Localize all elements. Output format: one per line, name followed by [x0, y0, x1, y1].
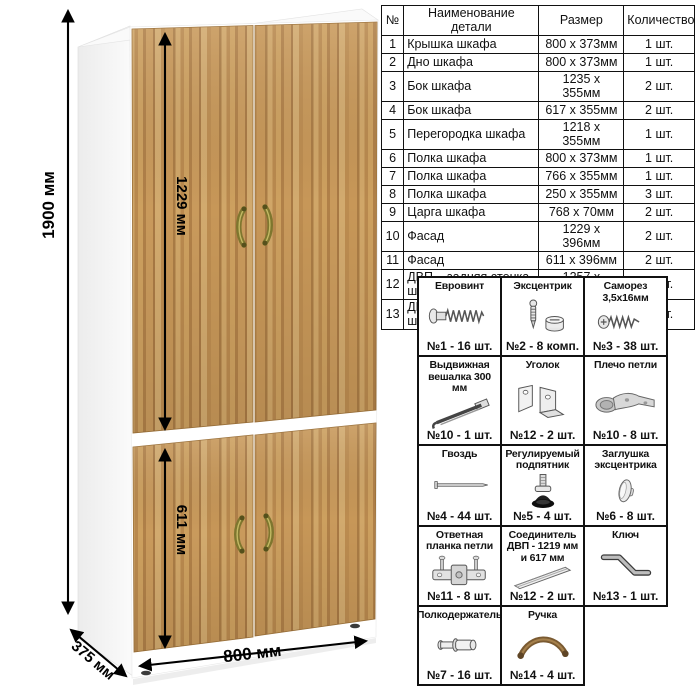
part-name: Полка шкафа	[404, 168, 539, 186]
hardware-count: №2 - 8 комп.	[506, 340, 579, 353]
part-number: 2	[382, 54, 404, 72]
screw-icon	[594, 304, 658, 340]
part-name: Бок шкафа	[404, 102, 539, 120]
hardware-count: №14 - 4 шт.	[510, 669, 576, 682]
part-size: 800 x 373мм	[539, 150, 624, 168]
part-size: 250 x 355мм	[539, 186, 624, 204]
part-size: 1235 x 355мм	[539, 72, 624, 102]
hardware-cell-hinge-arm: Плечо петли №10 - 8 шт.	[585, 357, 666, 444]
parts-table-header-row: № Наименование детали Размер Количество	[382, 6, 695, 36]
part-number: 1	[382, 36, 404, 54]
hardware-empty-cell	[584, 606, 667, 685]
parts-row: 4Бок шкафа617 x 355мм2 шт.	[382, 102, 695, 120]
header-name: Наименование детали	[404, 6, 539, 36]
header-size: Размер	[539, 6, 624, 36]
part-number: 6	[382, 150, 404, 168]
hardware-name: Ручка	[528, 610, 557, 622]
parts-row: 7Полка шкафа766 x 355мм1 шт.	[382, 168, 695, 186]
part-qty: 2 шт.	[624, 102, 695, 120]
hardware-cell-gvozd: Гвоздь №4 - 44 шт.	[419, 446, 500, 525]
part-size: 768 x 70мм	[539, 204, 624, 222]
part-name: Фасад	[404, 222, 539, 252]
hardware-cell-hanger: Выдвижная вешалка 300 мм №10 - 1 шт.	[419, 357, 500, 444]
hardware-count: №12 - 2 шт.	[510, 429, 576, 442]
part-qty: 3 шт.	[624, 186, 695, 204]
hardware-name: Регулируемый подпятник	[503, 449, 582, 472]
part-qty: 1 шт.	[624, 120, 695, 150]
part-qty: 2 шт.	[624, 72, 695, 102]
hardware-cell-otv-planka: Ответная планка петли №11 - 8 шт.	[419, 527, 500, 606]
hardware-cell-samorez: Саморез 3,5х16мм №3 - 38 шт.	[585, 278, 666, 355]
hardware-cell-eccentric: Эксцентрик №2 - 8 комп.	[502, 278, 583, 355]
header-qty: Количество	[624, 6, 695, 36]
hardware-name: Саморез 3,5х16мм	[586, 281, 665, 304]
hdf-connector-icon	[510, 564, 576, 590]
hinge-arm-icon	[593, 372, 659, 429]
part-qty: 1 шт.	[624, 36, 695, 54]
part-name: Дно шкафа	[404, 54, 539, 72]
part-name: Бок шкафа	[404, 72, 539, 102]
parts-row: 10Фасад1229 x 396мм2 шт.	[382, 222, 695, 252]
part-name: Перегородка шкафа	[404, 120, 539, 150]
hardware-count: №12 - 2 шт.	[510, 590, 576, 603]
hardware-cell-podpyatnik: Регулируемый подпятник №5 - 4 шт.	[502, 446, 583, 525]
hardware-count: №13 - 1 шт.	[593, 590, 659, 603]
hardware-cell-ruchka: Ручка №14 - 4 шт.	[502, 607, 583, 684]
hardware-count: №4 - 44 шт.	[427, 510, 493, 523]
part-number: 5	[382, 120, 404, 150]
part-qty: 1 шт.	[624, 54, 695, 72]
part-size: 800 x 373мм	[539, 54, 624, 72]
hardware-name: Евровинт	[435, 281, 484, 293]
part-number: 4	[382, 102, 404, 120]
hardware-name: Соединитель ДВП - 1219 мм и 617 мм	[503, 530, 582, 565]
hardware-name: Полкодержатель	[417, 610, 502, 622]
hardware-name: Плечо петли	[594, 360, 657, 372]
hardware-count: №3 - 38 шт.	[593, 340, 659, 353]
hardware-name: Эксцентрик	[513, 281, 571, 293]
part-name: Царга шкафа	[404, 204, 539, 222]
parts-row: 6Полка шкафа800 x 373мм1 шт.	[382, 150, 695, 168]
hardware-count: №6 - 8 шт.	[596, 510, 655, 523]
shelf-pin-icon	[431, 622, 489, 670]
parts-row: 3Бок шкафа1235 x 355мм2 шт.	[382, 72, 695, 102]
pullout-hanger-icon	[427, 395, 493, 429]
part-name: Полка шкафа	[404, 150, 539, 168]
part-qty: 1 шт.	[624, 168, 695, 186]
hardware-name: Уголок	[526, 360, 560, 372]
part-number: 13	[382, 300, 404, 330]
part-name: Полка шкафа	[404, 186, 539, 204]
hardware-name: Ответная планка петли	[420, 530, 499, 553]
parts-row: 8Полка шкафа250 x 355мм3 шт.	[382, 186, 695, 204]
parts-row: 11Фасад611 x 396мм2 шт.	[382, 252, 695, 270]
hardware-count: №1 - 16 шт.	[427, 340, 493, 353]
hardware-count: №10 - 8 шт.	[593, 429, 659, 442]
parts-row: 5Перегородка шкафа1218 x 355мм1 шт.	[382, 120, 695, 150]
part-size: 1218 x 355мм	[539, 120, 624, 150]
adjustable-foot-icon	[511, 472, 575, 510]
part-size: 611 x 396мм	[539, 252, 624, 270]
part-number: 11	[382, 252, 404, 270]
part-size: 766 x 355мм	[539, 168, 624, 186]
cam-cap-icon	[598, 472, 654, 510]
part-name: Фасад	[404, 252, 539, 270]
hardware-table: Евровинт №1 - 16 шт. Эксцентрик	[417, 276, 668, 686]
parts-row: 1Крышка шкафа800 x 373мм1 шт.	[382, 36, 695, 54]
hardware-name: Ключ	[612, 530, 639, 542]
bow-handle-icon	[510, 622, 576, 670]
eccentric-cam-icon	[509, 293, 577, 341]
confirmat-screw-icon	[426, 293, 494, 341]
hardware-count: №5 - 4 шт.	[513, 510, 572, 523]
part-size: 617 x 355мм	[539, 102, 624, 120]
lower-door-dimension-label: 611 мм	[173, 505, 190, 556]
part-qty: 2 шт.	[624, 222, 695, 252]
part-number: 10	[382, 222, 404, 252]
hardware-cell-klyuch: Ключ №13 - 1 шт.	[585, 527, 666, 606]
hardware-cell-eurovint: Евровинт №1 - 16 шт.	[419, 278, 500, 355]
part-number: 3	[382, 72, 404, 102]
part-name: Крышка шкафа	[404, 36, 539, 54]
hardware-count: №10 - 1 шт.	[427, 429, 493, 442]
hardware-name: Выдвижная вешалка 300 мм	[420, 360, 499, 395]
parts-row: 2Дно шкафа800 x 373мм1 шт.	[382, 54, 695, 72]
parts-row: 9Царга шкафа768 x 70мм2 шт.	[382, 204, 695, 222]
corner-bracket-icon	[511, 372, 575, 429]
part-size: 1229 x 396мм	[539, 222, 624, 252]
part-number: 8	[382, 186, 404, 204]
hardware-cell-soedinitel: Соединитель ДВП - 1219 мм и 617 мм №12 -…	[502, 527, 583, 606]
hardware-name: Гвоздь	[442, 449, 477, 461]
part-size: 800 x 373мм	[539, 36, 624, 54]
header-num: №	[382, 6, 404, 36]
part-number: 7	[382, 168, 404, 186]
height-dimension-label: 1900 мм	[39, 171, 58, 239]
upper-door-dimension-label: 1229 мм	[173, 176, 190, 236]
part-number: 9	[382, 204, 404, 222]
hardware-cell-polkoderzhatel: Полкодержатель №7 - 16 шт.	[419, 607, 500, 684]
left-side-panel	[78, 26, 133, 676]
part-qty: 2 шт.	[624, 252, 695, 270]
hardware-name: Заглушка эксцентрика	[586, 449, 665, 472]
part-number: 12	[382, 270, 404, 300]
hardware-cell-zaglushka: Заглушка эксцентрика №6 - 8 шт.	[585, 446, 666, 525]
part-qty: 1 шт.	[624, 150, 695, 168]
hardware-cell-ugolok: Уголок №12 - 2 шт.	[502, 357, 583, 444]
part-qty: 2 шт.	[624, 204, 695, 222]
hardware-count: №11 - 8 шт.	[427, 590, 492, 603]
hinge-plate-icon	[426, 553, 494, 591]
nail-icon	[428, 460, 492, 510]
key-icon	[594, 541, 658, 590]
hardware-count: №7 - 16 шт.	[427, 669, 493, 682]
